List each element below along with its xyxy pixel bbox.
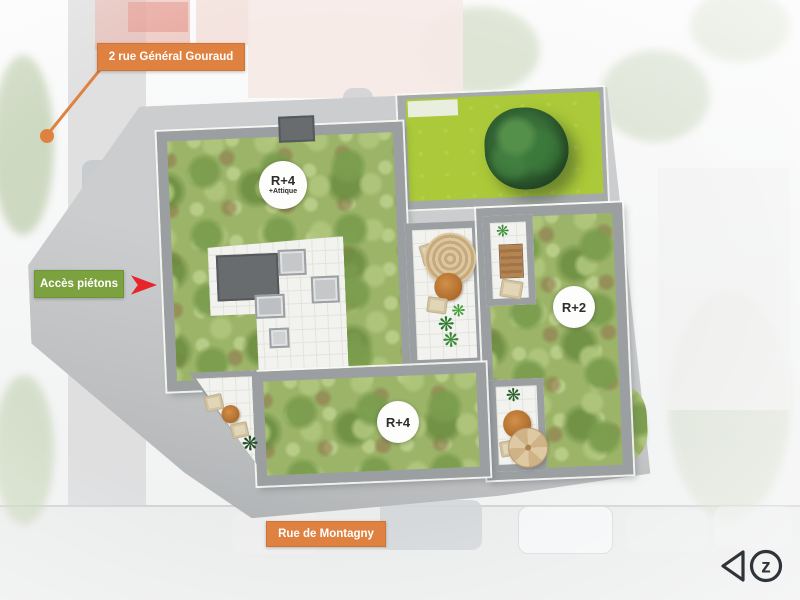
plant-icon: ❋ [442, 330, 460, 351]
background-building [658, 168, 790, 410]
site-plan-page: ❋ ❋ ❋ ❋ ❋ ❋ [0, 0, 800, 600]
street-label-bottom-text: Rue de Montagny [278, 528, 374, 540]
terrace-chair [426, 296, 448, 315]
skylight [311, 275, 340, 303]
storey-badge-east: R+2 [553, 286, 595, 328]
storey-value: R+4 [386, 416, 410, 429]
background-building [128, 2, 188, 32]
skylight [278, 249, 307, 276]
tree-blob [690, 0, 790, 62]
storey-extra: +Attique [269, 187, 297, 196]
lawn-annex [408, 99, 459, 117]
skylight [269, 328, 290, 349]
street-label-top: 2 rue Général Gouraud [97, 43, 245, 71]
plant-icon: ❋ [496, 224, 510, 241]
east-building-block: ❋ ❋ [476, 202, 633, 480]
pedestrian-access-label: Accès piétons [34, 270, 124, 298]
south-building-block [253, 362, 491, 486]
label-leader-dot [40, 129, 54, 143]
logo-letter: z [761, 557, 771, 578]
large-tree [483, 106, 570, 191]
east-terrace-north: ❋ [482, 214, 536, 306]
east-terrace-south: ❋ [488, 378, 547, 472]
wood-table [499, 244, 524, 279]
storey-badge-south: R+4 [377, 401, 419, 443]
pedestrian-access-text: Accès piétons [40, 278, 118, 290]
parked-car [714, 506, 792, 548]
parked-car [626, 510, 708, 552]
terrace-chair [499, 278, 524, 299]
street-label-bottom: Rue de Montagny [266, 521, 386, 547]
parasol [507, 427, 549, 469]
storey-badge-main: R+4 +Attique [259, 161, 307, 209]
lawn-area [397, 87, 608, 210]
street-label-top-text: 2 rue Général Gouraud [109, 51, 234, 63]
middle-terrace: ❋ ❋ ❋ [405, 220, 485, 367]
storey-value: R+2 [562, 301, 586, 314]
logo-triangle-icon [723, 552, 743, 580]
roof-access-block [278, 115, 315, 142]
developer-logo-icon: z [718, 544, 790, 588]
skylight [254, 294, 285, 319]
plant-icon: ❋ [241, 434, 259, 455]
background-building [196, 0, 251, 45]
storey-value: R+4 [271, 174, 295, 187]
plant-icon: ❋ [506, 386, 522, 405]
